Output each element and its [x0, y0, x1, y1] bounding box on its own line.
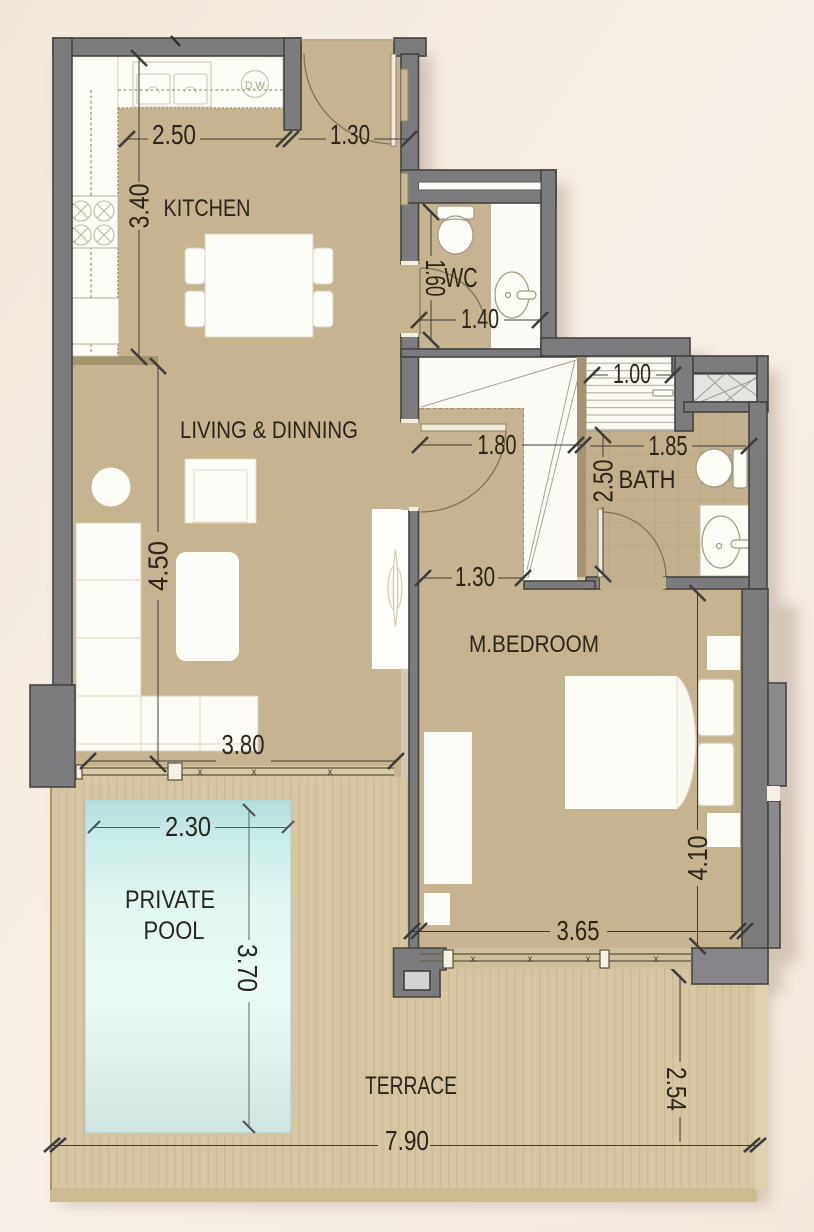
svg-text:3.65: 3.65	[557, 915, 600, 946]
svg-text:WC: WC	[445, 262, 478, 293]
svg-text:KITCHEN: KITCHEN	[164, 195, 251, 222]
svg-text:BATH: BATH	[619, 466, 676, 494]
svg-text:POOL: POOL	[144, 917, 205, 945]
svg-text:x: x	[198, 767, 203, 778]
svg-text:1.40: 1.40	[461, 303, 499, 334]
svg-text:x: x	[586, 954, 591, 965]
svg-text:2.30: 2.30	[165, 811, 211, 842]
svg-text:LIVING & DINNING: LIVING & DINNING	[180, 417, 358, 444]
svg-text:x: x	[528, 954, 533, 965]
svg-text:4.50: 4.50	[143, 541, 174, 591]
svg-text:3.40: 3.40	[124, 184, 155, 229]
svg-text:TERRACE: TERRACE	[365, 1072, 457, 1100]
svg-text:1.30: 1.30	[330, 119, 370, 150]
svg-text:2.54: 2.54	[661, 1067, 692, 1111]
svg-text:x: x	[654, 954, 659, 965]
svg-text:2.50: 2.50	[588, 460, 619, 503]
svg-text:1.80: 1.80	[478, 429, 517, 460]
svg-text:x: x	[252, 767, 257, 778]
svg-text:x: x	[328, 767, 333, 778]
svg-text:x: x	[471, 954, 476, 965]
svg-text:1.00: 1.00	[613, 358, 651, 389]
svg-text:2.50: 2.50	[152, 119, 196, 150]
svg-text:M.BEDROOM: M.BEDROOM	[469, 631, 599, 658]
svg-text:3.80: 3.80	[222, 729, 265, 760]
svg-text:1.30: 1.30	[455, 561, 495, 592]
svg-text:1.85: 1.85	[649, 430, 688, 461]
svg-text:3.70: 3.70	[232, 944, 263, 992]
svg-text:4.10: 4.10	[682, 836, 713, 881]
svg-text:7.90: 7.90	[385, 1125, 429, 1156]
svg-text:PRIVATE: PRIVATE	[125, 886, 215, 914]
